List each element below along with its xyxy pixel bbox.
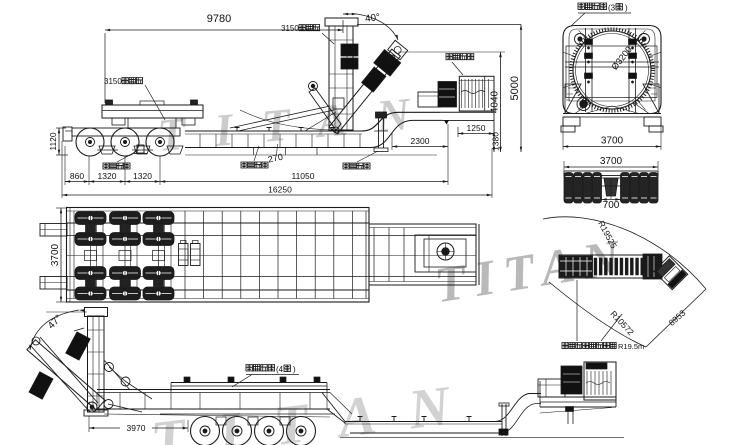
svg-text:40°: 40° [364,12,381,25]
svg-text:3700: 3700 [601,136,624,147]
svg-text:2300: 2300 [411,136,430,146]
svg-text:860: 860 [70,171,84,181]
svg-text:1320: 1320 [133,171,152,181]
svg-text:3700: 3700 [600,156,623,167]
svg-text:3700: 3700 [50,243,61,266]
svg-text:1250: 1250 [467,123,486,133]
svg-text:5000: 5000 [509,76,521,100]
svg-text:16250: 16250 [268,185,292,195]
svg-text:R19.5m: R19.5m [618,342,644,351]
svg-text:9780: 9780 [207,13,231,25]
svg-text:700: 700 [603,200,620,211]
svg-text:(3: (3 [608,4,616,13]
svg-text:11050: 11050 [291,171,314,181]
svg-text:3150: 3150 [281,24,299,33]
svg-text:(4: (4 [276,365,284,374]
svg-text:1120: 1120 [48,132,58,151]
svg-text:3970: 3970 [127,423,146,433]
svg-text:): ) [625,4,628,13]
svg-text:1320: 1320 [98,171,117,181]
svg-text:): ) [293,365,296,374]
svg-text:4040: 4040 [490,90,501,113]
svg-text:3150: 3150 [104,77,122,86]
